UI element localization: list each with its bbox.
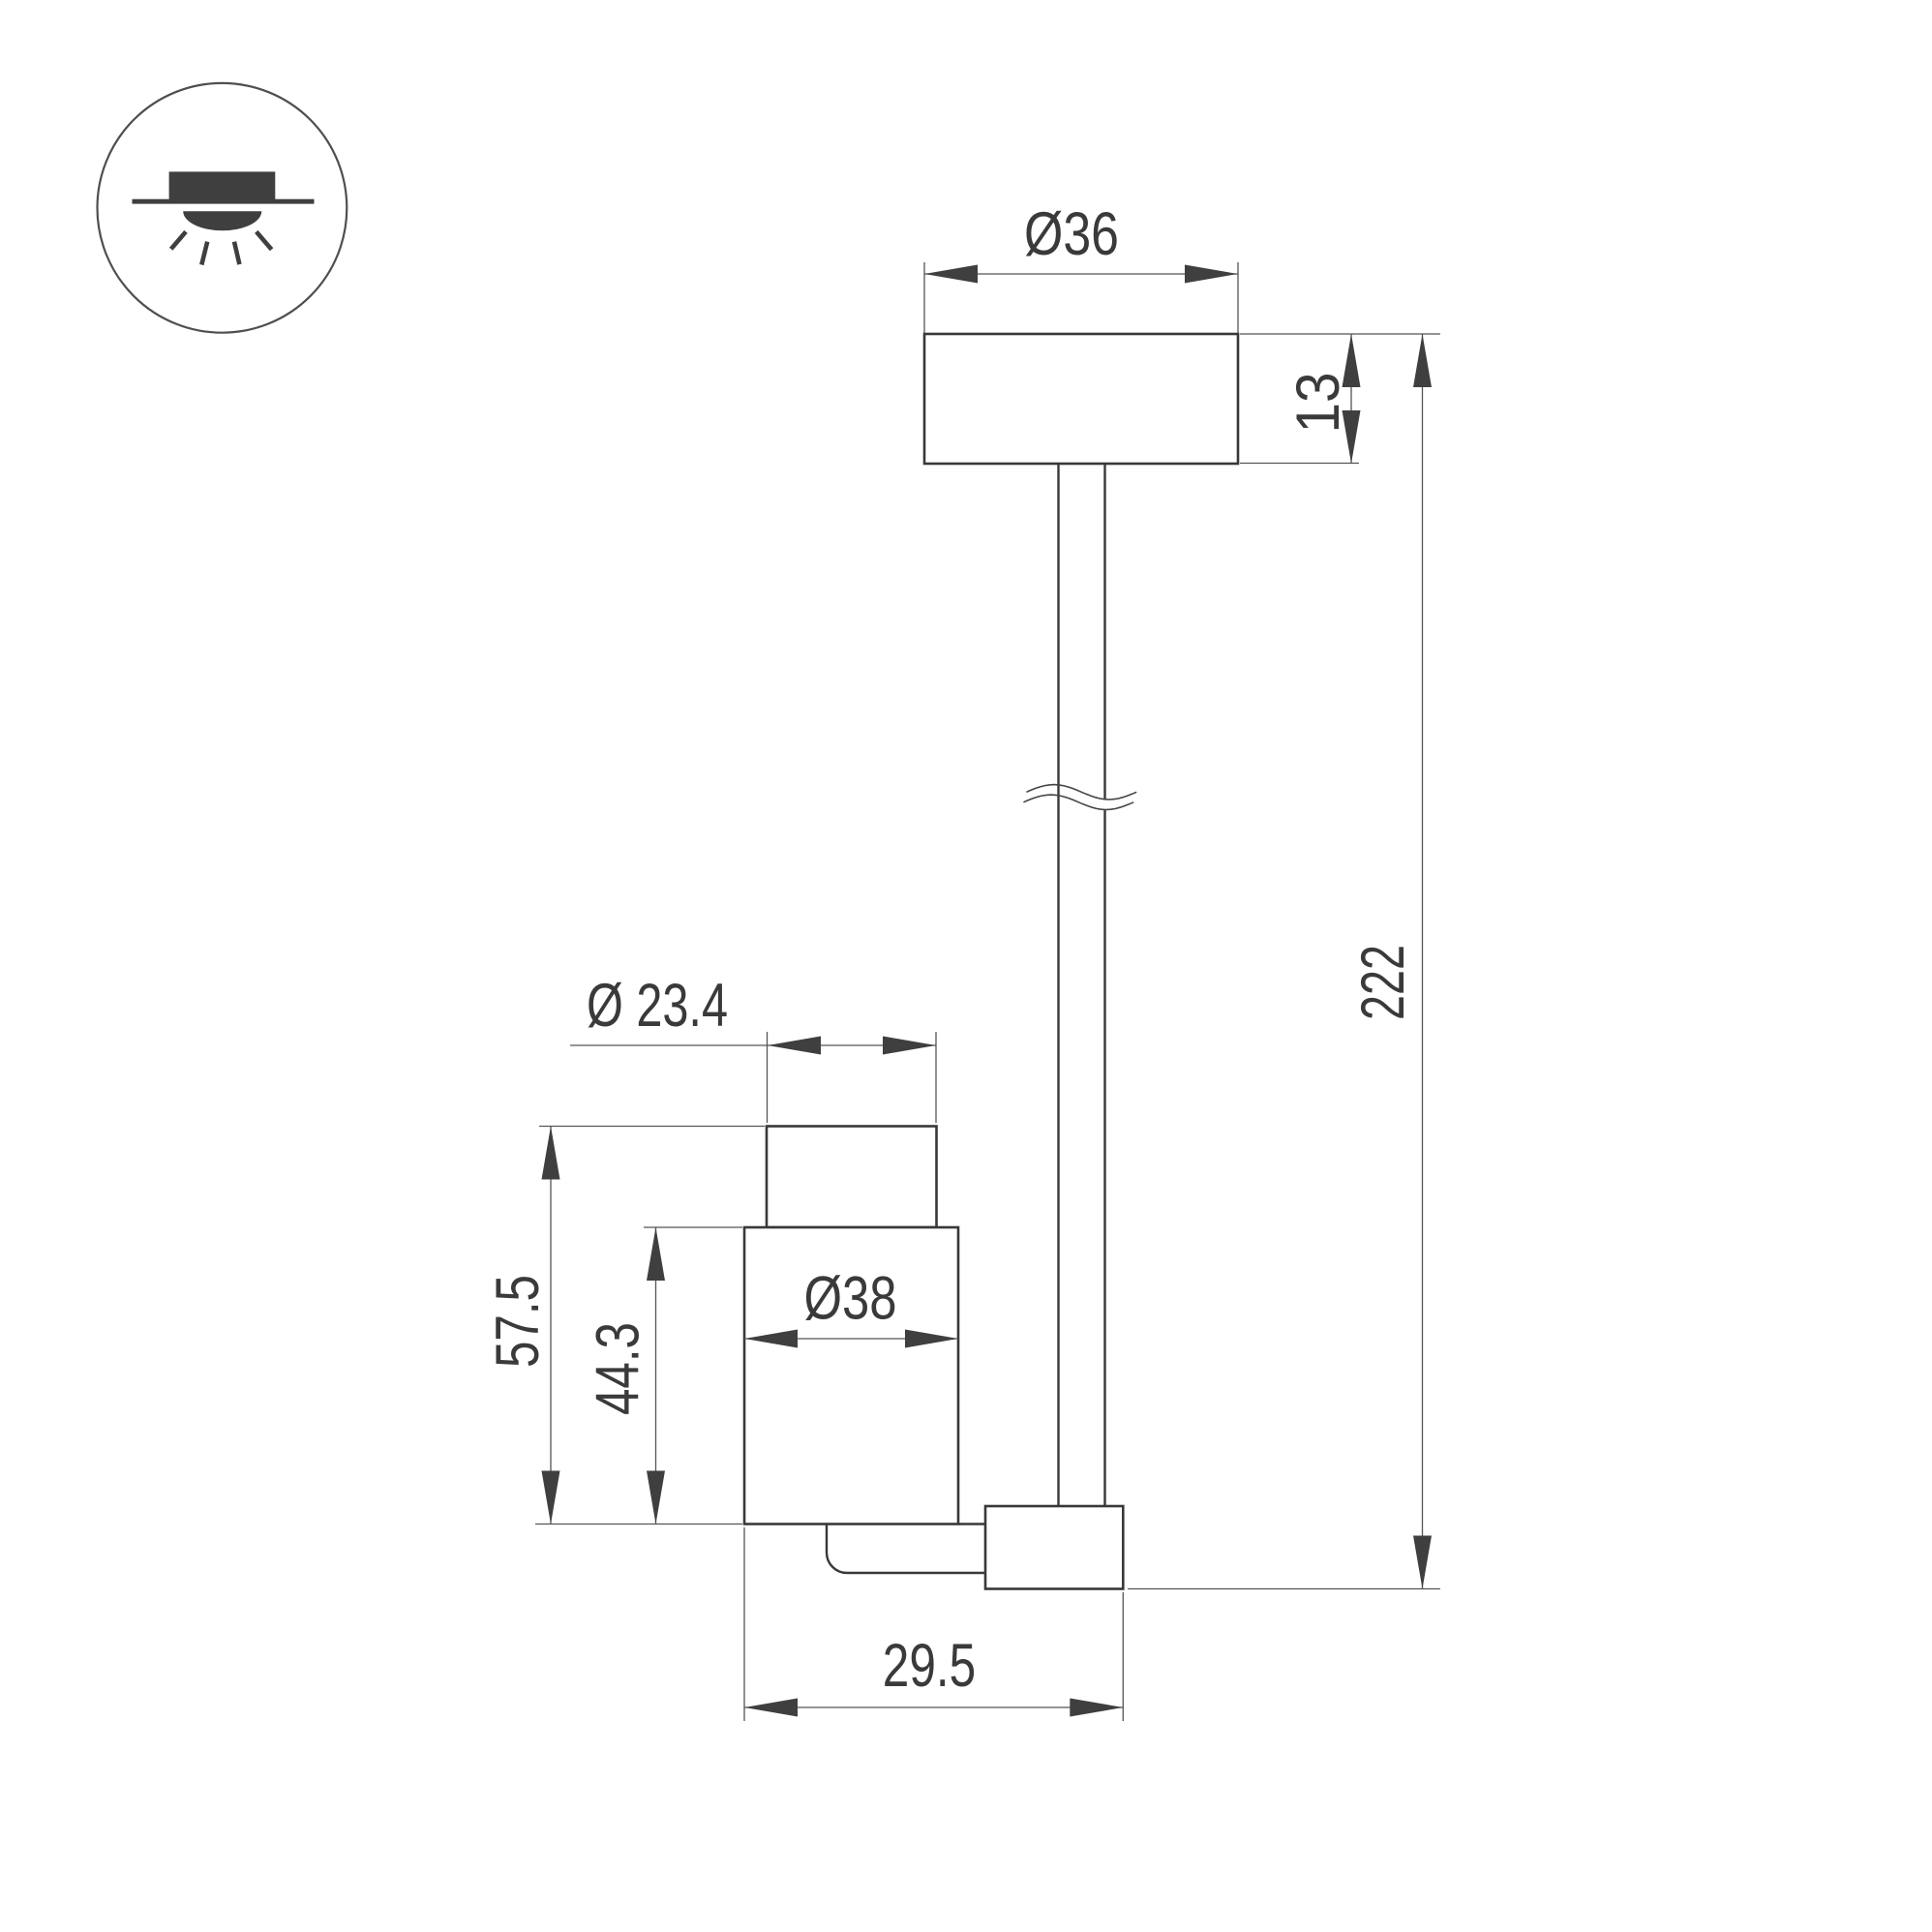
svg-text:57.5: 57.5 [483,1275,551,1368]
svg-text:Ø38: Ø38 [804,1264,897,1332]
svg-text:44.3: 44.3 [584,1322,651,1415]
svg-text:Ø 23.4: Ø 23.4 [587,971,728,1040]
svg-text:222: 222 [1348,945,1416,1020]
svg-text:13: 13 [1283,372,1351,433]
svg-text:29.5: 29.5 [883,1632,976,1700]
svg-text:Ø36: Ø36 [1024,200,1119,268]
